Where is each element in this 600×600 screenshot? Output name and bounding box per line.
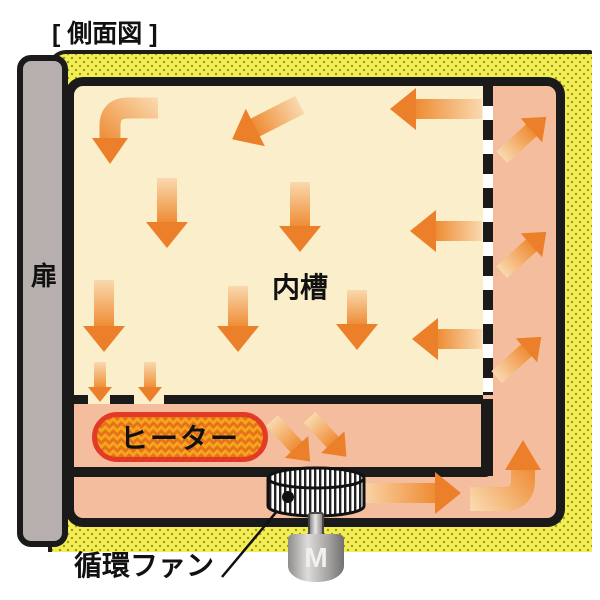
circulation-fan <box>264 466 368 518</box>
heater: ヒーター <box>92 412 268 462</box>
door <box>17 55 68 547</box>
vent-gap <box>134 395 164 404</box>
door-label: 扉 <box>31 256 57 293</box>
diagram-side-view: [ 側面図 ] 扉 ヒーター M <box>0 0 600 600</box>
inner-chamber <box>74 86 483 395</box>
motor-label: M <box>304 542 327 574</box>
inner-chamber-label: 内槽 <box>250 266 350 306</box>
chamber-right-dashed-wall <box>483 86 493 395</box>
diagram-title: [ 側面図 ] <box>52 14 158 50</box>
heater-label: ヒーター <box>120 417 240 457</box>
heater-channel-right-wall <box>481 399 493 476</box>
fan-pointer-dot <box>282 491 294 503</box>
fan-label: 循環ファン <box>74 544 214 584</box>
vent-gap <box>88 395 110 404</box>
motor: M <box>288 534 344 582</box>
fan-drum <box>268 468 364 516</box>
